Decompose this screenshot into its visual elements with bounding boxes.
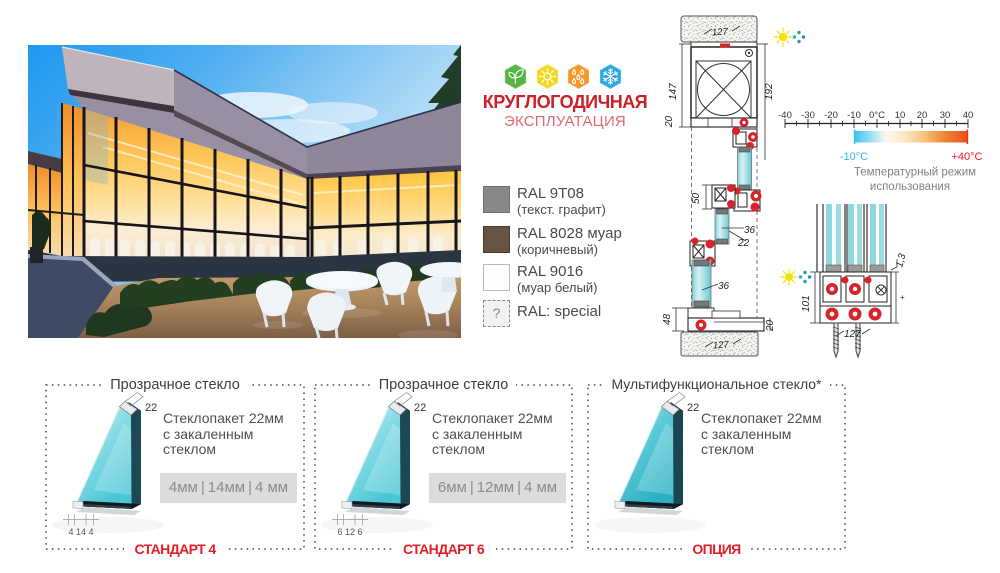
svg-text:101: 101 xyxy=(801,295,812,312)
svg-text:22: 22 xyxy=(687,402,699,414)
svg-text:Температурный режим: Температурный режим xyxy=(854,167,976,179)
svg-text:127: 127 xyxy=(844,329,861,340)
svg-text:22: 22 xyxy=(414,402,426,414)
svg-text:147: 147 xyxy=(668,83,679,100)
svg-text:-10°C: -10°C xyxy=(840,151,868,163)
svg-text:использования: использования xyxy=(870,181,950,193)
svg-text:22: 22 xyxy=(145,402,157,414)
svg-text:36: 36 xyxy=(718,281,730,292)
svg-text:1,3: 1,3 xyxy=(894,252,908,269)
svg-text:192: 192 xyxy=(764,83,775,100)
svg-text:127: 127 xyxy=(713,339,730,351)
svg-text:6 12 6: 6 12 6 xyxy=(337,527,362,537)
svg-text:20: 20 xyxy=(664,115,675,128)
svg-text:22: 22 xyxy=(737,238,750,249)
svg-text:+40°C: +40°C xyxy=(951,151,982,163)
svg-text:48: 48 xyxy=(662,313,673,325)
svg-text:+: + xyxy=(900,293,905,302)
svg-text:20: 20 xyxy=(765,319,776,332)
svg-text:50: 50 xyxy=(691,192,702,204)
svg-text:127: 127 xyxy=(712,26,729,38)
svg-text:36: 36 xyxy=(744,225,756,236)
svg-text:4 14 4: 4 14 4 xyxy=(68,527,93,537)
